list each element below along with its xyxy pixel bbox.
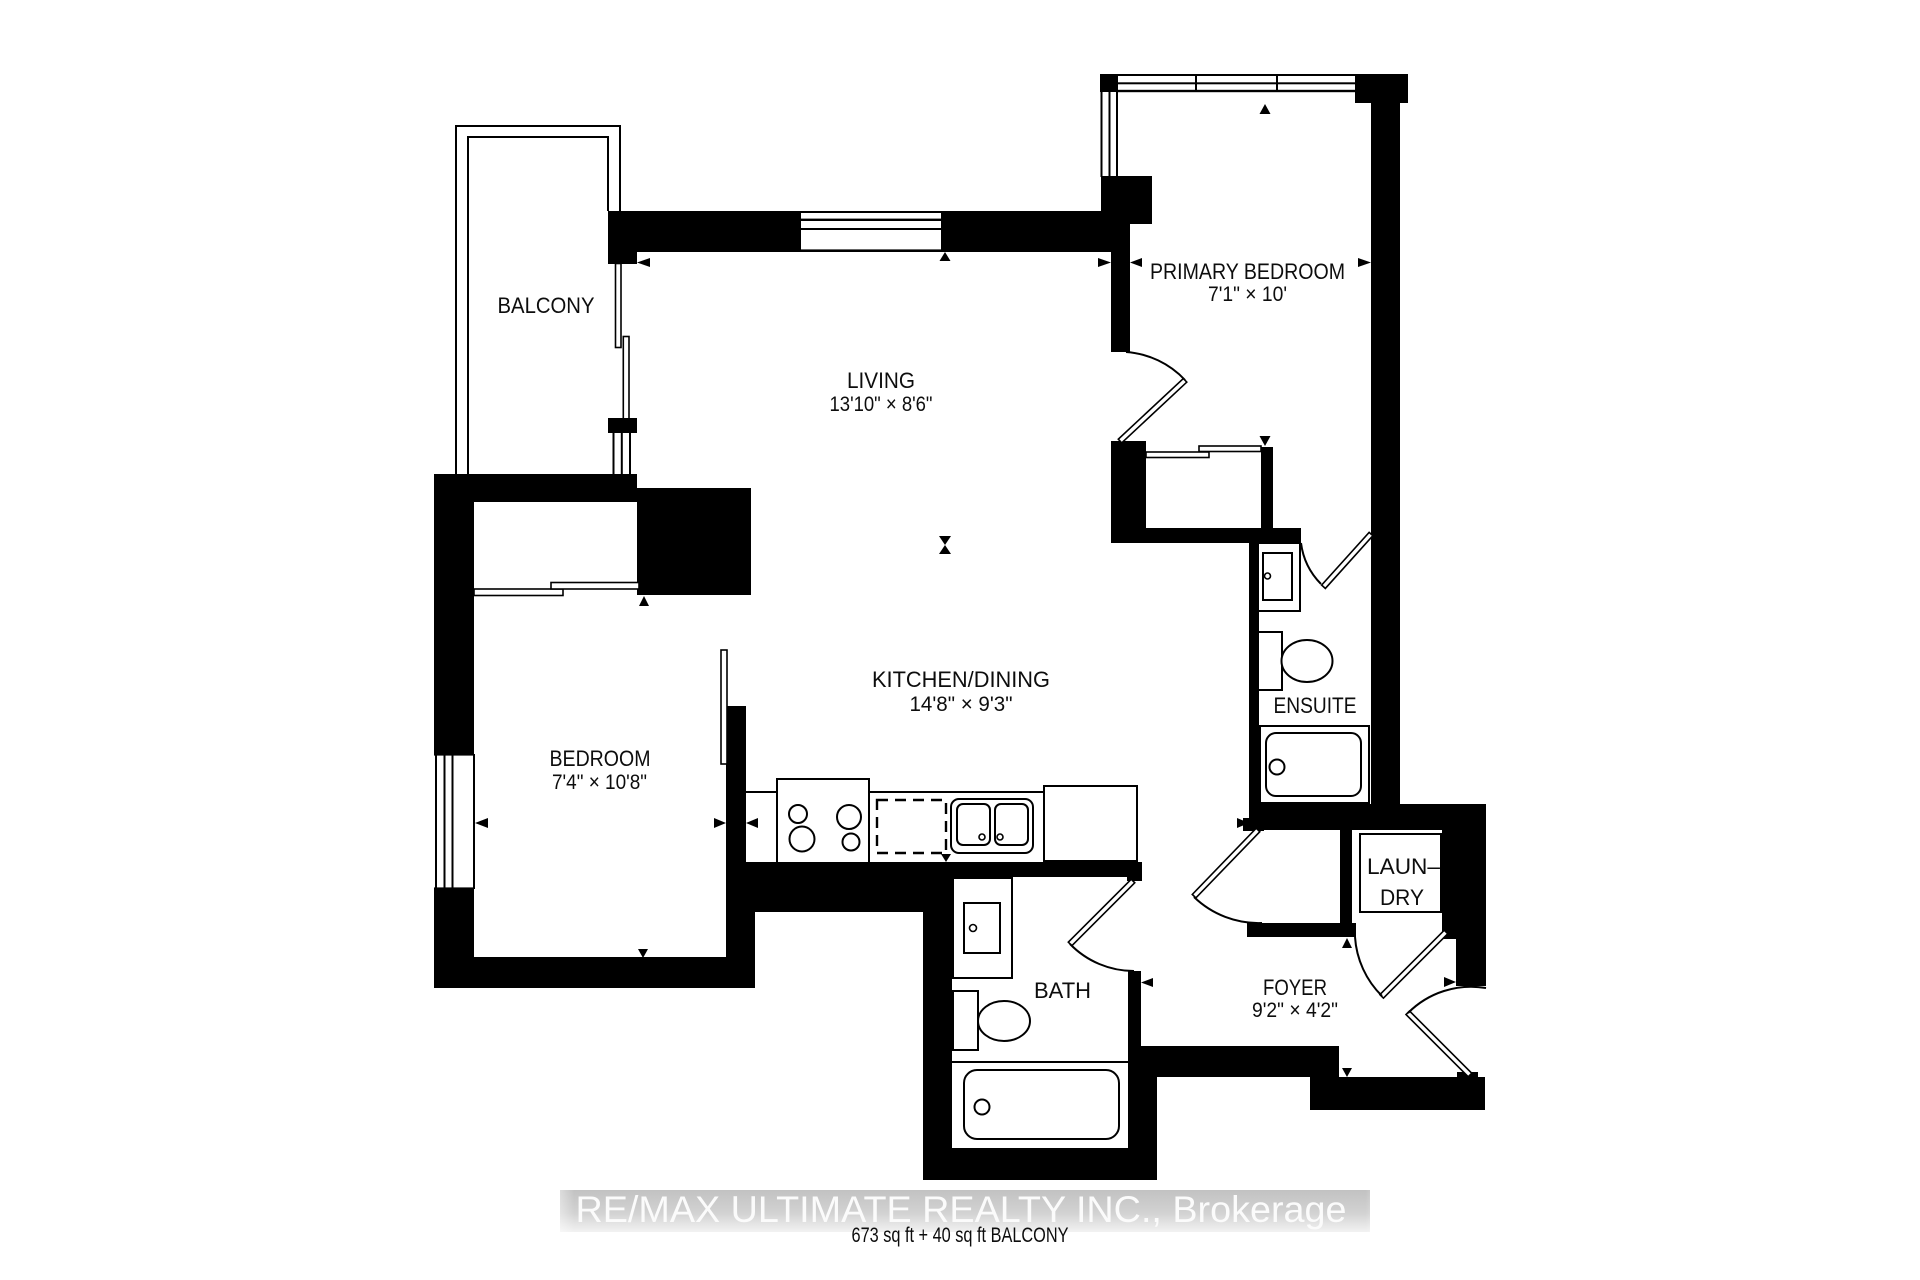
- svg-text:ENSUITE: ENSUITE: [1274, 693, 1357, 718]
- svg-text:LAUN–: LAUN–: [1367, 854, 1441, 879]
- svg-text:FOYER: FOYER: [1263, 975, 1327, 1000]
- svg-text:673 sq ft + 40 sq ft BALCONY: 673 sq ft + 40 sq ft BALCONY: [852, 1224, 1069, 1247]
- svg-text:7'4" × 10'8": 7'4" × 10'8": [552, 771, 647, 794]
- svg-text:9'2" × 4'2": 9'2" × 4'2": [1252, 999, 1338, 1022]
- svg-text:BATH: BATH: [1034, 978, 1091, 1003]
- svg-text:DRY: DRY: [1380, 885, 1424, 910]
- svg-text:14'8" × 9'3": 14'8" × 9'3": [910, 693, 1013, 716]
- svg-text:KITCHEN/DINING: KITCHEN/DINING: [872, 667, 1050, 692]
- svg-text:LIVING: LIVING: [847, 368, 915, 393]
- svg-text:BALCONY: BALCONY: [498, 293, 595, 318]
- svg-text:BEDROOM: BEDROOM: [550, 746, 651, 771]
- svg-text:13'10" × 8'6": 13'10" × 8'6": [830, 393, 933, 416]
- svg-text:PRIMARY BEDROOM: PRIMARY BEDROOM: [1150, 259, 1345, 284]
- svg-text:7'1" × 10': 7'1" × 10': [1208, 283, 1287, 306]
